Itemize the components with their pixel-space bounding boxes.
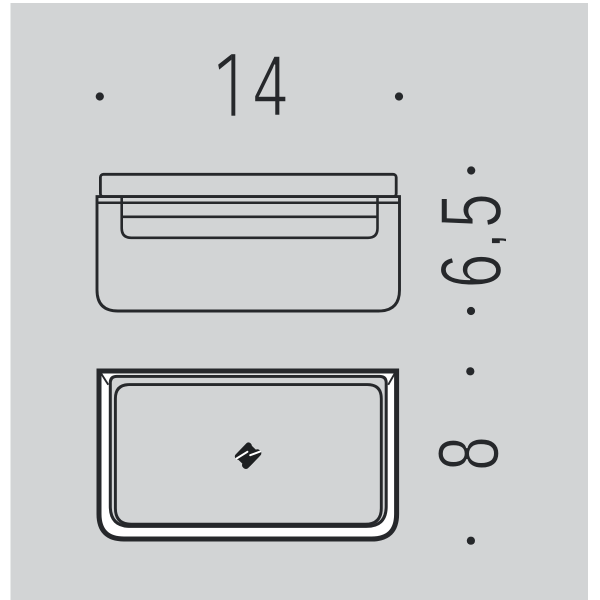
svg-text:8: 8	[420, 436, 516, 470]
svg-text:6,5: 6,5	[422, 189, 518, 288]
svg-text:4: 4	[253, 37, 287, 133]
